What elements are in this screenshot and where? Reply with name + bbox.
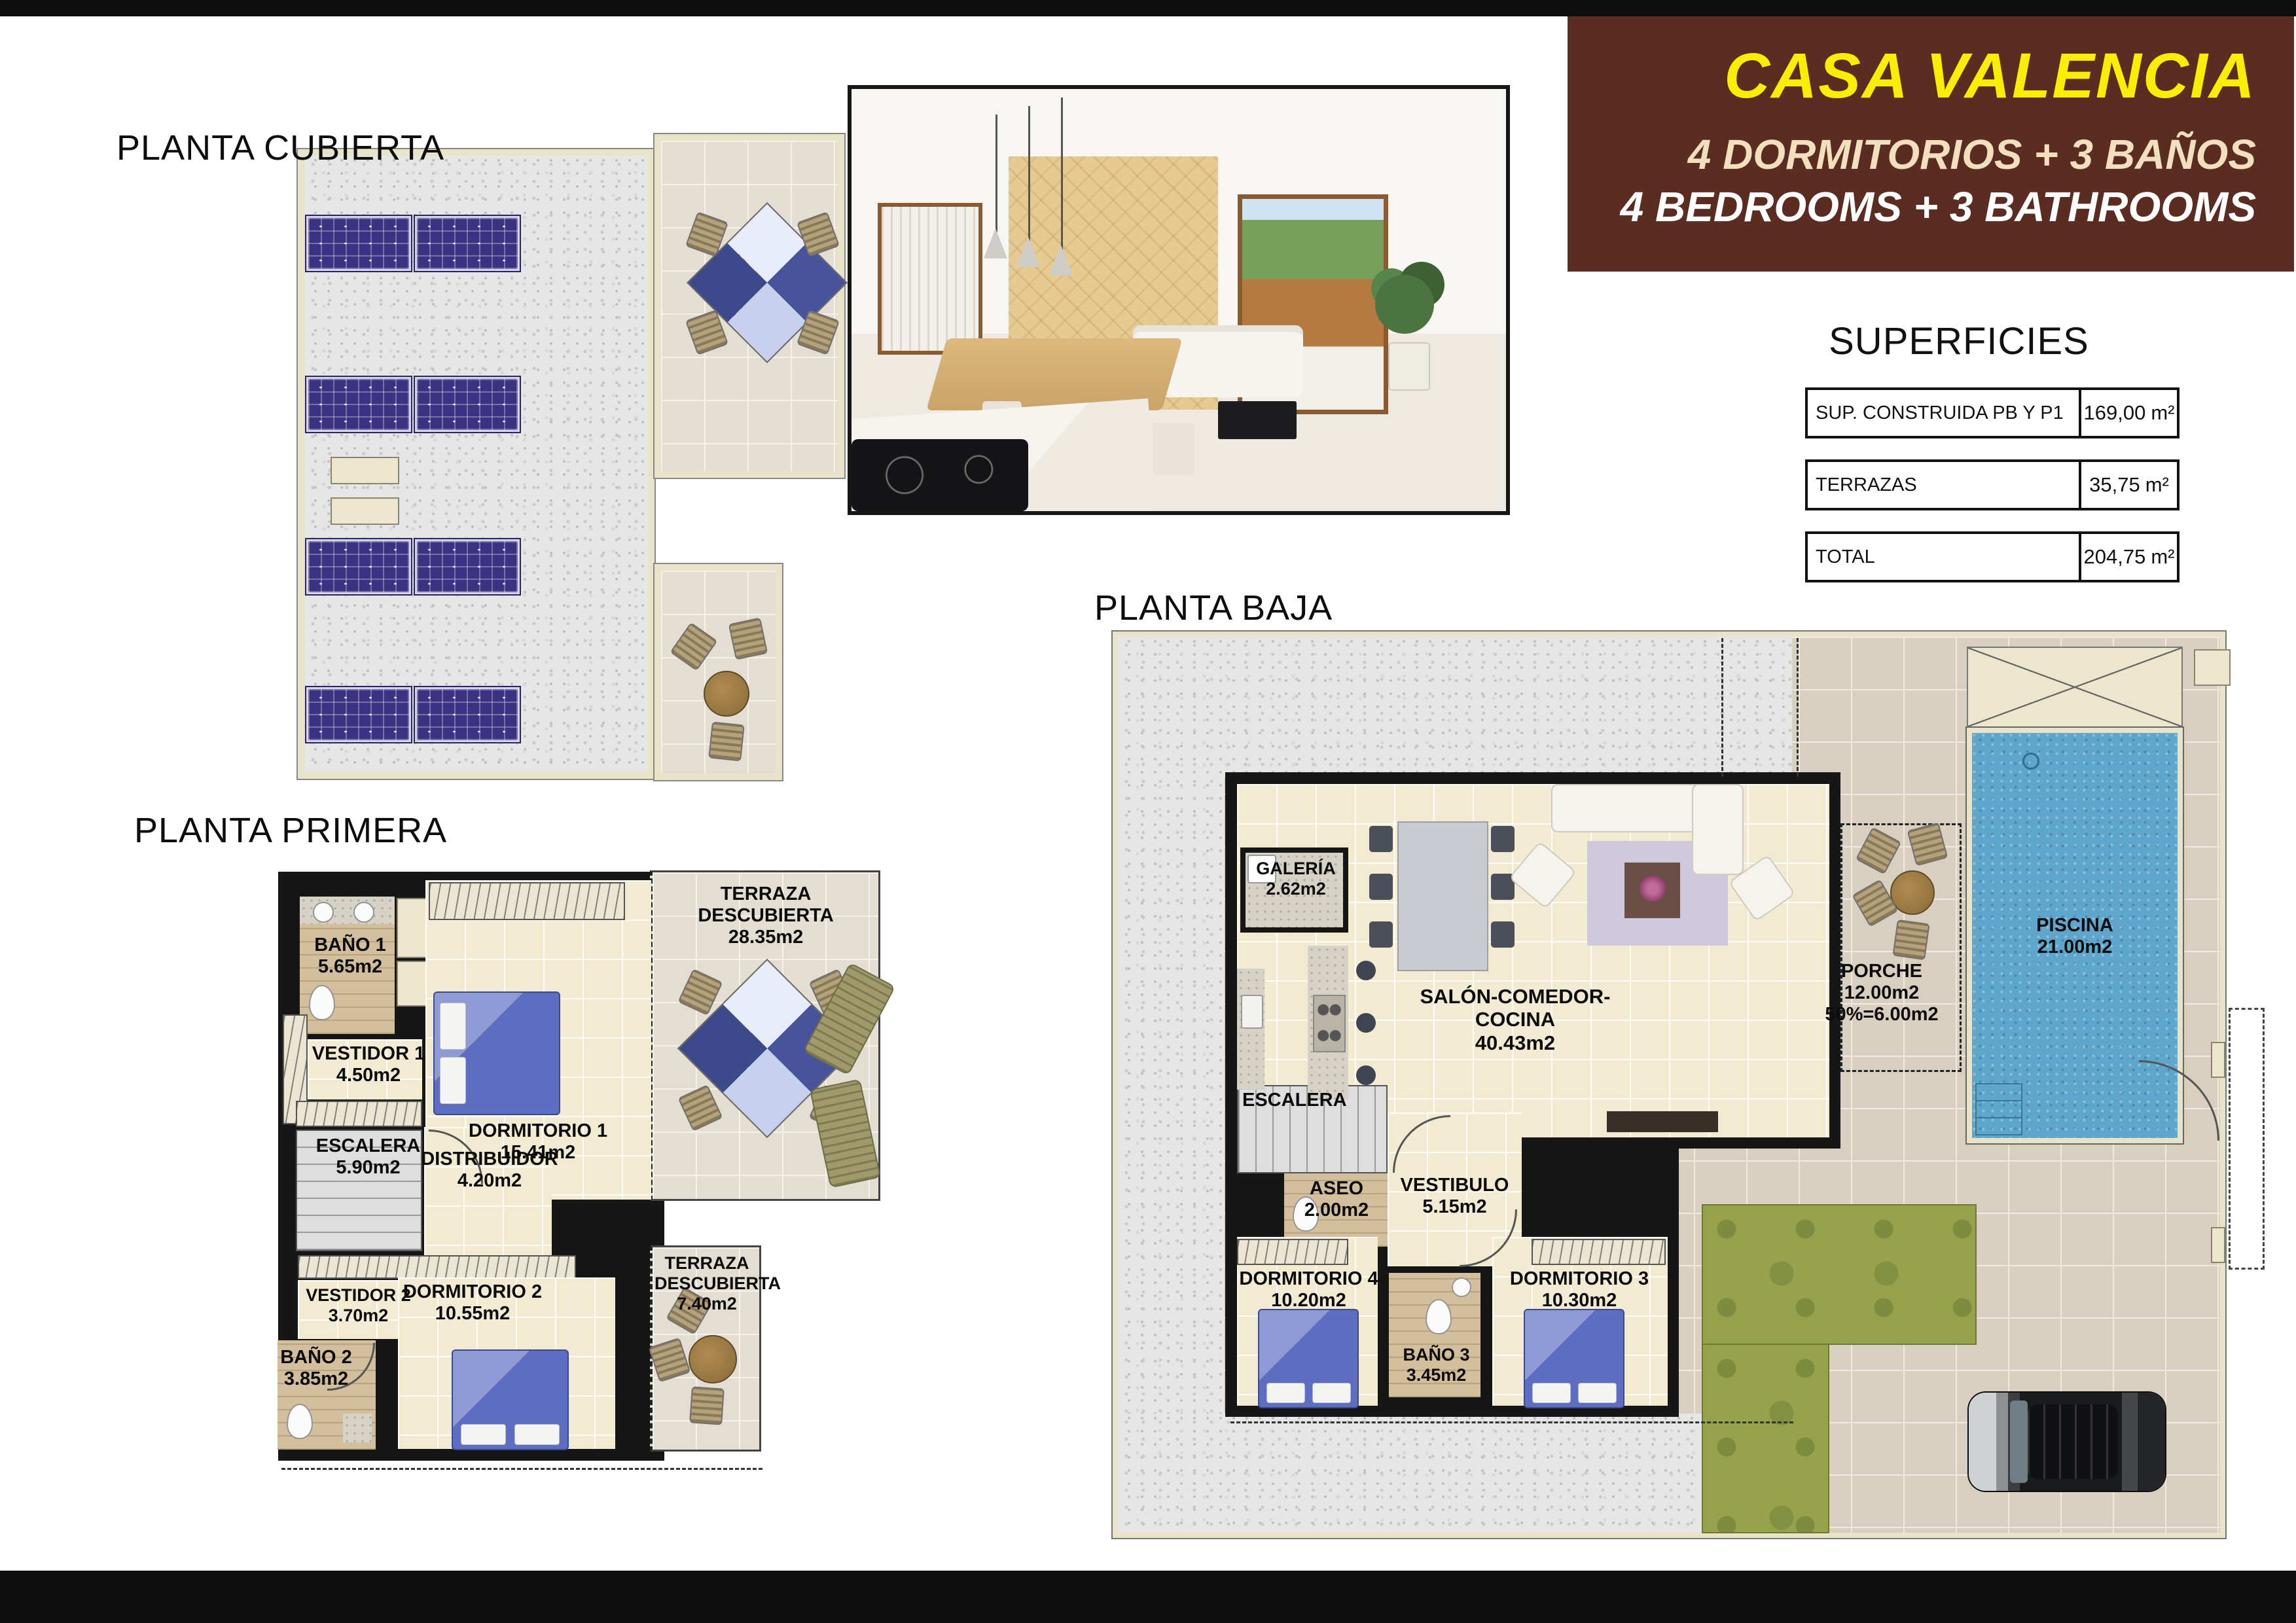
closet [1237,1239,1348,1265]
plan-title-baja: PLANTA BAJA [1094,588,1333,628]
solar-panel [415,216,520,271]
solar-panel [306,377,411,432]
closet [1532,1239,1666,1265]
bed [433,991,560,1115]
header-panel: CASA VALENCIA 4 DORMITORIOS + 3 BAÑOS 4 … [1568,16,2294,272]
dining-chair [1369,874,1393,900]
superficies-value: 204,75 m² [2081,534,2177,580]
pool-drain [2022,753,2039,770]
room-label-salon: SALÓN-COMEDOR-COCINA40.43m2 [1388,985,1643,1054]
dining-chair [1491,921,1515,948]
superficies-row-total: TOTAL 204,75 m² [1805,531,2179,582]
value-unit: m² [2145,473,2169,497]
bed [452,1349,569,1450]
terrace-chair [689,1386,725,1425]
tv-bench [1607,1111,1718,1132]
superficies-value: 35,75 m² [2081,462,2177,508]
subtitle-spanish: 4 DORMITORIOS + 3 BAÑOS [1688,134,2256,175]
plan-title-cubierta: PLANTA CUBIERTA [117,128,444,168]
round-table [689,1335,737,1383]
superficies-row-terrazas: TERRAZAS 35,75 m² [1805,459,2179,510]
kitchen-counter [1237,969,1265,1090]
sink-counter [343,1414,372,1442]
solar-panel [306,687,411,742]
superficies-title: SUPERFICIES [1805,319,2113,363]
round-table [704,671,749,717]
bed [1258,1309,1359,1408]
toilet [309,985,335,1020]
superficies-label: TERRAZAS [1808,462,2081,508]
solar-panel [415,539,520,594]
gate-post [2211,1042,2225,1078]
pergola [1967,647,2183,728]
superficies-value: 169,00 m² [2081,390,2177,436]
bed [1524,1309,1624,1408]
terrace-chair [708,722,745,762]
interior-render-photo [848,85,1510,515]
bar-stool [1356,1065,1376,1085]
photo-pendant-shade [984,228,1007,259]
room-label-vestidor2: VESTIDOR 23.70m2 [298,1285,419,1326]
room-label-vestibulo: VESTIBULO5.15m2 [1384,1175,1525,1218]
room-label-piscina: PISCINA21.00m2 [2003,915,2147,958]
superficies-label: TOTAL [1808,534,2081,580]
garden-area [1702,1204,1977,1345]
value-number: 204,75 [2084,545,2146,569]
toilet [287,1404,313,1439]
sink [353,902,374,923]
sink [313,902,334,923]
gate-dashed-zone [2229,1008,2265,1270]
room-label-galeria: GALERÍA2.62m2 [1244,859,1348,899]
pool-steps [1975,1083,2022,1135]
room-label-bano3: BAÑO 33.45m2 [1389,1345,1484,1385]
photo-plant-pot [1388,342,1430,391]
solar-panel [415,687,520,742]
terrace-chair [1892,919,1929,960]
room-label-bano1: BAÑO 15.65m2 [298,935,403,978]
bar-stool [1356,961,1376,980]
room-label-terraza2: TERRAZA DESCUBIERTA7.40m2 [655,1253,759,1313]
room-label-vestidor1: VESTIDOR 14.50m2 [303,1043,434,1086]
gate-post [2211,1227,2225,1263]
garden-area [1702,1344,1829,1533]
dining-chair [1369,921,1393,948]
closet [298,1255,576,1279]
superficies-row-construida: SUP. CONSTRUIDA PB Y P1 169,00 m² [1805,387,2179,438]
room-label-dormitorio4: DORMITORIO 410.20m2 [1232,1268,1386,1311]
room-label-escalera-pb: ESCALERA [1237,1090,1380,1111]
photo-plant [1375,275,1434,334]
room-label-porche: PORCHE12.00m250%=6.00m2 [1813,961,1950,1026]
photo-cooktop [852,439,1028,511]
photo-coffee-table [1218,401,1297,439]
roof-hatch-box [331,497,399,525]
solar-panel [415,377,520,432]
solar-panel [306,539,411,594]
photo-pendant-light [1028,106,1030,241]
kitchen-sink [1241,995,1263,1029]
cooktop [1313,995,1346,1052]
sofa-chaise [1692,784,1744,875]
car [1969,1393,2165,1491]
property-dashed-line [1230,1421,1793,1423]
room-label-dormitorio3: DORMITORIO 310.30m2 [1498,1268,1661,1311]
dining-chair [1369,826,1393,852]
page-title: CASA VALENCIA [1724,44,2256,107]
value-number: 35,75 [2089,473,2140,497]
plot-gravel-left [1118,637,1223,1533]
value-number: 169,00 [2084,401,2146,425]
brochure-page: CASA VALENCIA 4 DORMITORIOS + 3 BAÑOS 4 … [0,0,2296,1623]
closet [429,882,625,920]
photo-chair [1153,423,1194,475]
subtitle-english: 4 BEDROOMS + 3 BATHROOMS [1621,186,2256,228]
property-dashed-line [1797,638,1799,777]
top-border-bar [0,0,2296,16]
photo-pendant-light [1061,98,1063,249]
closet [296,1101,422,1127]
plan-title-primera: PLANTA PRIMERA [134,810,447,851]
value-unit: m² [2151,401,2174,425]
room-label-distribuidor: DISTRIBUIDOR4.20m2 [418,1149,562,1192]
room-label-bano2: BAÑO 23.85m2 [267,1347,365,1390]
flower-centerpiece [1640,876,1666,902]
dining-chair [1491,826,1515,852]
photo-pendant-light [996,115,997,233]
toilet [1426,1299,1452,1334]
superficies-label: SUP. CONSTRUIDA PB Y P1 [1808,390,2081,436]
sink [1452,1277,1471,1297]
solar-panel [306,216,411,271]
value-unit: m² [2151,545,2174,569]
room-label-aseo: ASEO2.00m2 [1291,1178,1382,1221]
room-label-terraza1: TERRAZA DESCUBIERTA28.35m2 [674,883,857,948]
property-dashed-line [281,1468,762,1470]
property-dashed-line [1721,638,1723,777]
photo-window [878,203,982,355]
bar-stool [1356,1013,1376,1033]
roof-hatch-box [331,457,399,484]
gate-post [2194,649,2231,686]
dining-table [1397,821,1488,971]
plot-gravel-bottom [1118,1414,1792,1533]
bottom-border-bar [0,1571,2296,1623]
